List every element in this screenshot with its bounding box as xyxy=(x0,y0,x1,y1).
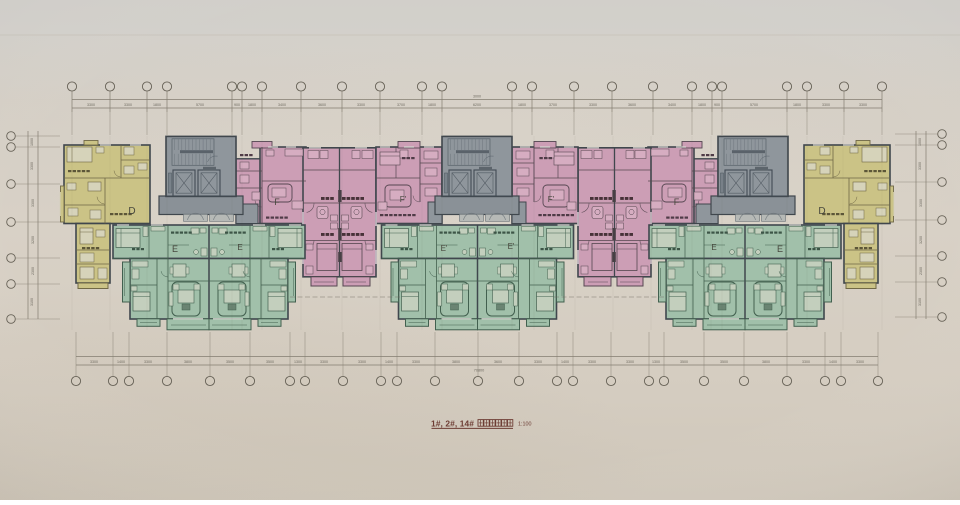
svg-text:3200: 3200 xyxy=(31,236,35,244)
svg-text:D: D xyxy=(128,206,135,217)
svg-text:3600: 3600 xyxy=(628,103,636,107)
svg-text:1800: 1800 xyxy=(248,103,256,107)
svg-text:3300: 3300 xyxy=(859,103,867,107)
svg-text:E: E xyxy=(711,243,716,252)
svg-text:3300: 3300 xyxy=(90,360,98,364)
svg-text:3300: 3300 xyxy=(856,360,864,364)
svg-text:3300: 3300 xyxy=(124,103,132,107)
svg-text:5700: 5700 xyxy=(750,103,758,107)
svg-text:3500: 3500 xyxy=(720,360,728,364)
svg-text:2300: 2300 xyxy=(919,267,923,275)
svg-text:6200: 6200 xyxy=(473,103,481,107)
svg-text:3300: 3300 xyxy=(412,360,420,364)
svg-text:D: D xyxy=(818,206,825,217)
svg-text:1000: 1000 xyxy=(30,138,34,146)
svg-text:1400: 1400 xyxy=(561,360,569,364)
svg-text:3300: 3300 xyxy=(918,162,922,170)
svg-text:3300: 3300 xyxy=(87,103,95,107)
svg-text:3600: 3600 xyxy=(318,103,326,107)
svg-text:1#, 2#, 14#: 1#, 2#, 14# xyxy=(431,419,474,429)
svg-text:3300: 3300 xyxy=(626,360,634,364)
svg-text:2300: 2300 xyxy=(31,267,35,275)
svg-text:3200: 3200 xyxy=(919,236,923,244)
svg-text:1400: 1400 xyxy=(117,360,125,364)
svg-text:F': F' xyxy=(548,195,555,204)
svg-text:1400: 1400 xyxy=(829,360,837,364)
svg-text:3300: 3300 xyxy=(919,199,923,207)
svg-text:3300: 3300 xyxy=(534,360,542,364)
svg-text:1800: 1800 xyxy=(428,103,436,107)
svg-text:3700: 3700 xyxy=(549,103,557,107)
svg-text:3300: 3300 xyxy=(588,360,596,364)
svg-text:3400: 3400 xyxy=(278,103,286,107)
svg-text:3300: 3300 xyxy=(320,360,328,364)
svg-text:70800: 70800 xyxy=(474,369,485,373)
svg-text:3300: 3300 xyxy=(357,103,365,107)
svg-text:3300: 3300 xyxy=(30,162,34,170)
svg-text:3300: 3300 xyxy=(144,360,152,364)
svg-text:1300: 1300 xyxy=(652,360,660,364)
svg-text:3500: 3500 xyxy=(680,360,688,364)
svg-text:E: E xyxy=(777,244,783,254)
svg-text:E': E' xyxy=(508,242,515,251)
svg-text:E: E xyxy=(172,244,178,254)
svg-text:3700: 3700 xyxy=(397,103,405,107)
svg-text:3300: 3300 xyxy=(802,360,810,364)
svg-text:3800: 3800 xyxy=(184,360,192,364)
svg-text:3300: 3300 xyxy=(589,103,597,107)
svg-text:1400: 1400 xyxy=(385,360,393,364)
svg-text:900: 900 xyxy=(234,103,240,107)
svg-text:1800: 1800 xyxy=(153,103,161,107)
svg-text:3500: 3500 xyxy=(226,360,234,364)
svg-text:3400: 3400 xyxy=(668,103,676,107)
svg-text:3500: 3500 xyxy=(266,360,274,364)
svg-text:1800: 1800 xyxy=(698,103,706,107)
svg-text:F': F' xyxy=(400,195,407,204)
svg-text:3300: 3300 xyxy=(31,199,35,207)
svg-text:1000: 1000 xyxy=(918,138,922,146)
svg-text:1:100: 1:100 xyxy=(518,422,532,428)
svg-text:1300: 1300 xyxy=(294,360,302,364)
svg-text:F: F xyxy=(674,197,680,207)
svg-text:3100: 3100 xyxy=(918,298,922,306)
svg-text:5700: 5700 xyxy=(196,103,204,107)
svg-text:3600: 3600 xyxy=(494,360,502,364)
svg-text:3100: 3100 xyxy=(30,298,34,306)
svg-text:1800: 1800 xyxy=(518,103,526,107)
svg-text:900: 900 xyxy=(714,103,720,107)
svg-text:1800: 1800 xyxy=(793,103,801,107)
svg-text:F: F xyxy=(274,197,280,207)
svg-text:E': E' xyxy=(441,244,448,253)
svg-text:3000: 3000 xyxy=(473,95,481,99)
svg-text:E: E xyxy=(237,243,242,252)
svg-text:3800: 3800 xyxy=(762,360,770,364)
svg-text:3800: 3800 xyxy=(452,360,460,364)
svg-text:3300: 3300 xyxy=(822,103,830,107)
svg-text:3300: 3300 xyxy=(358,360,366,364)
